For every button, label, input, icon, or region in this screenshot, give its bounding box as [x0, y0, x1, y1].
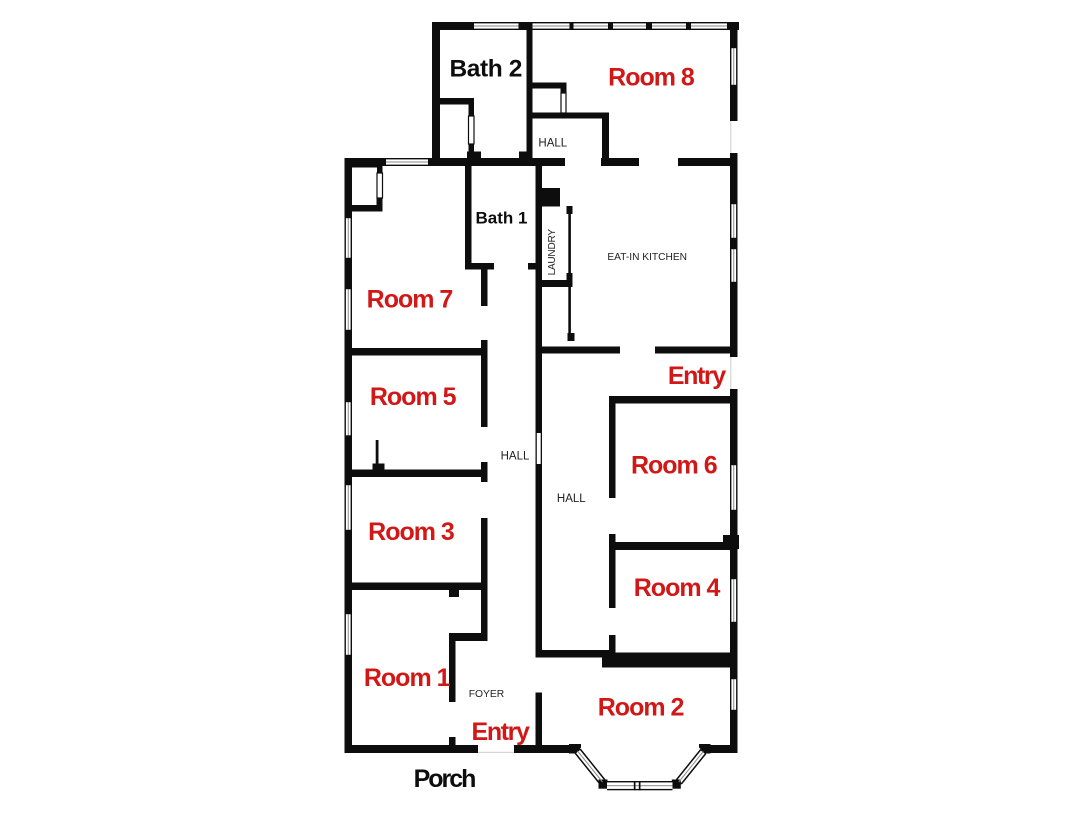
svg-text:EAT-IN KITCHEN: EAT-IN KITCHEN [607, 252, 687, 263]
svg-text:Entry: Entry [668, 362, 726, 390]
svg-text:FOYER: FOYER [469, 689, 504, 700]
svg-text:Room 3: Room 3 [368, 518, 454, 546]
svg-text:Room 6: Room 6 [631, 452, 717, 480]
svg-text:LAUNDRY: LAUNDRY [547, 229, 558, 276]
svg-text:HALL: HALL [538, 137, 567, 149]
svg-text:Bath 2: Bath 2 [449, 56, 521, 83]
svg-text:Entry: Entry [472, 718, 530, 746]
svg-text:Room 7: Room 7 [367, 286, 453, 314]
svg-text:Room 5: Room 5 [370, 383, 457, 411]
svg-text:Room 4: Room 4 [634, 574, 721, 602]
svg-text:Bath 1: Bath 1 [476, 209, 528, 228]
svg-text:Room 1: Room 1 [364, 664, 451, 692]
svg-text:HALL: HALL [557, 493, 586, 505]
svg-text:HALL: HALL [501, 450, 530, 462]
svg-text:Porch: Porch [414, 765, 476, 793]
svg-text:Room 8: Room 8 [608, 64, 695, 92]
svg-text:Room 2: Room 2 [598, 693, 684, 721]
